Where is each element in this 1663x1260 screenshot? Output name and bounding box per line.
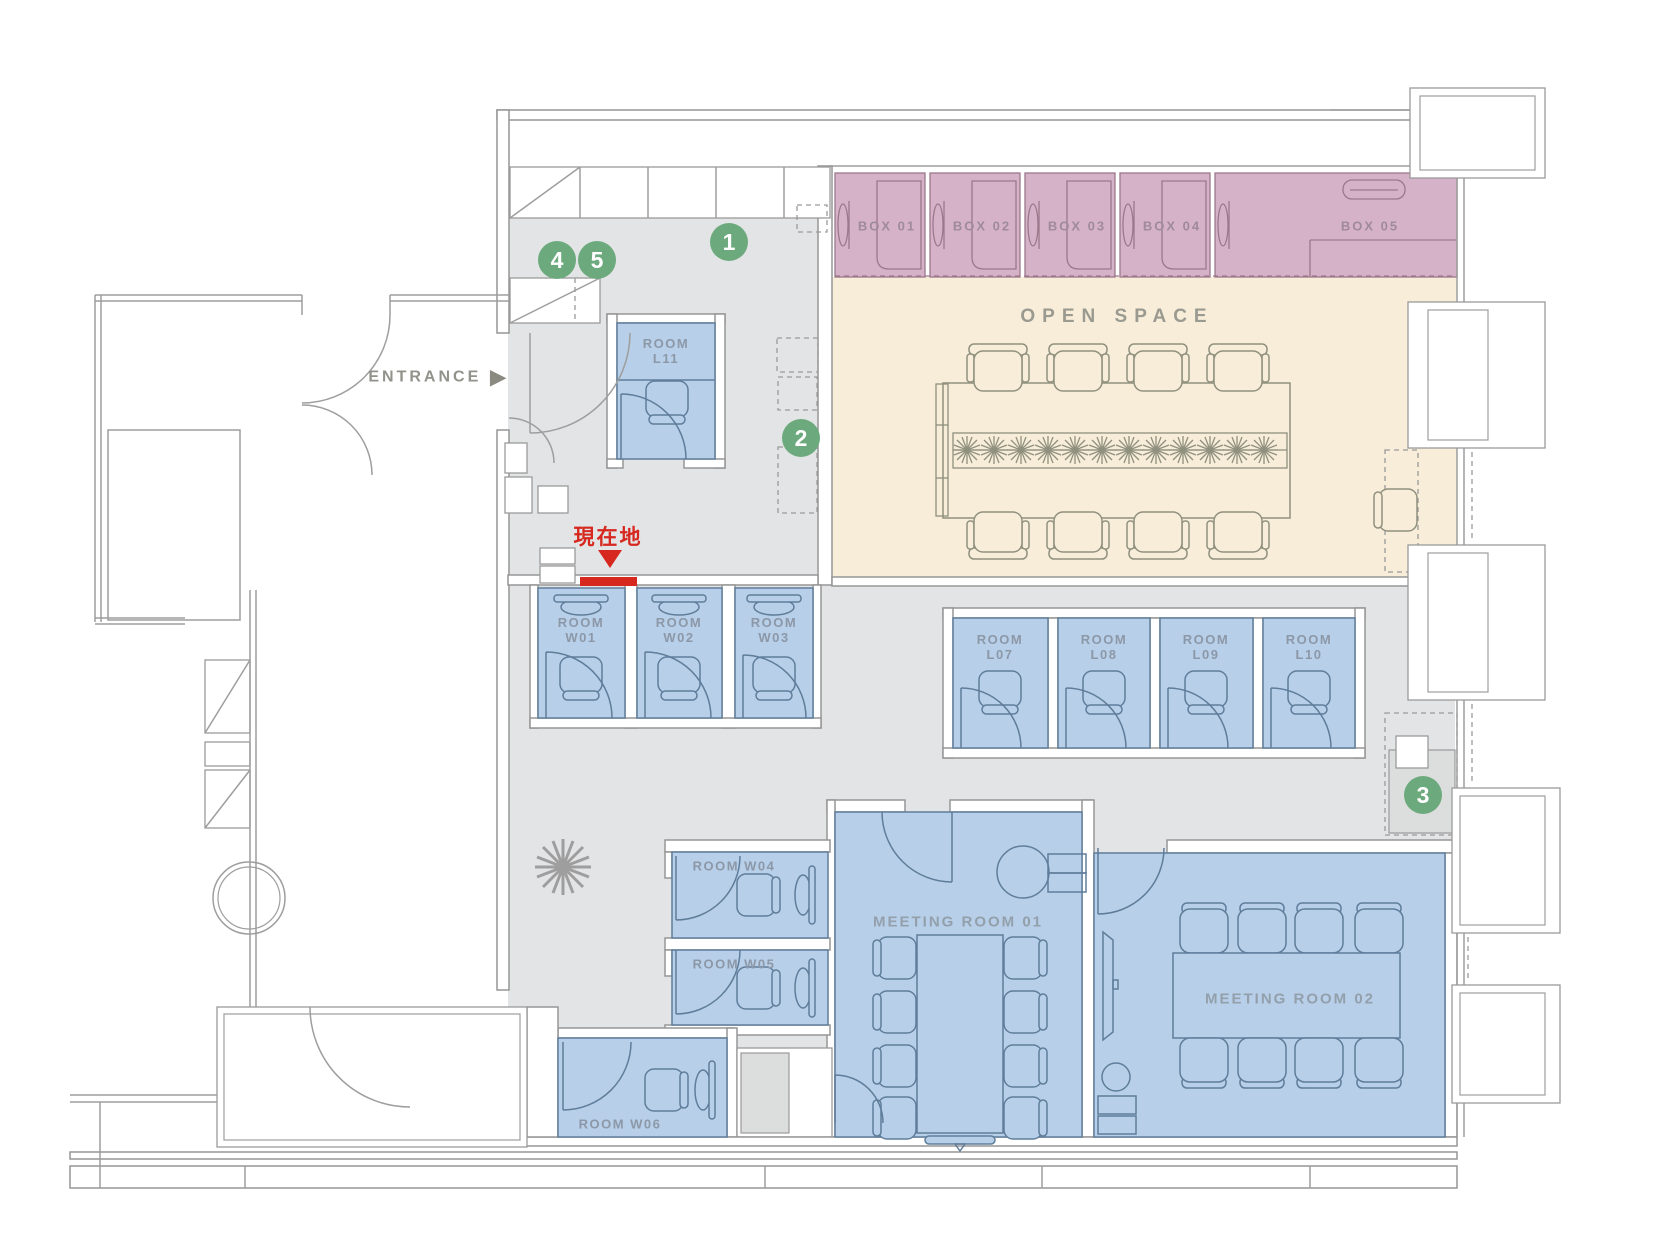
room-w04-label: ROOM W04: [693, 859, 776, 874]
meeting-room-01-label: MEETING ROOM 01: [873, 914, 1043, 931]
current-location-bar: [580, 577, 637, 586]
marker-4: 4: [538, 241, 576, 279]
box-02-label: BOX 02: [953, 219, 1011, 234]
floor-plan-drawing: [0, 0, 1663, 1260]
entrance-text: ENTRANCE: [368, 368, 481, 386]
room-l07-label: ROOM L07: [977, 633, 1023, 663]
room-w06-label: ROOM W06: [579, 1117, 662, 1132]
open-space-label: OPEN SPACE: [1020, 306, 1213, 328]
marker-3: 3: [1404, 776, 1442, 814]
box-01-label: BOX 01: [858, 219, 916, 234]
room-l11-label: ROOM L11: [643, 337, 689, 367]
room-w02: [637, 588, 722, 718]
room-w03-label: ROOM W03: [751, 616, 797, 646]
room-l08-label: ROOM L08: [1081, 633, 1127, 663]
box-05-label: BOX 05: [1341, 219, 1399, 234]
marker-1: 1: [710, 223, 748, 261]
current-location-label: 現在地: [574, 521, 643, 551]
room-w02-label: ROOM W02: [656, 616, 702, 646]
box-05-room: [1215, 173, 1457, 277]
entrance-arrow-icon: ▶: [490, 365, 505, 390]
room-w01: [538, 588, 625, 718]
meeting-room-01: [835, 812, 1086, 1151]
corridor-plant: [535, 839, 591, 895]
room-l09-label: ROOM L09: [1183, 633, 1229, 663]
floor-plan: ENTRANCE ▶ OPEN SPACE BOX 01 BOX 02 BOX …: [0, 0, 1663, 1260]
room-w03: [735, 588, 813, 718]
entrance-label: ENTRANCE ▶: [368, 365, 505, 390]
room-w05-label: ROOM W05: [693, 957, 776, 972]
meeting-room-02-label: MEETING ROOM 02: [1205, 991, 1375, 1008]
room-l10-label: ROOM L10: [1286, 633, 1332, 663]
box-03-label: BOX 03: [1048, 219, 1106, 234]
marker-5: 5: [578, 241, 616, 279]
marker-2: 2: [782, 419, 820, 457]
box-04-label: BOX 04: [1143, 219, 1201, 234]
room-w01-label: ROOM W01: [558, 616, 604, 646]
